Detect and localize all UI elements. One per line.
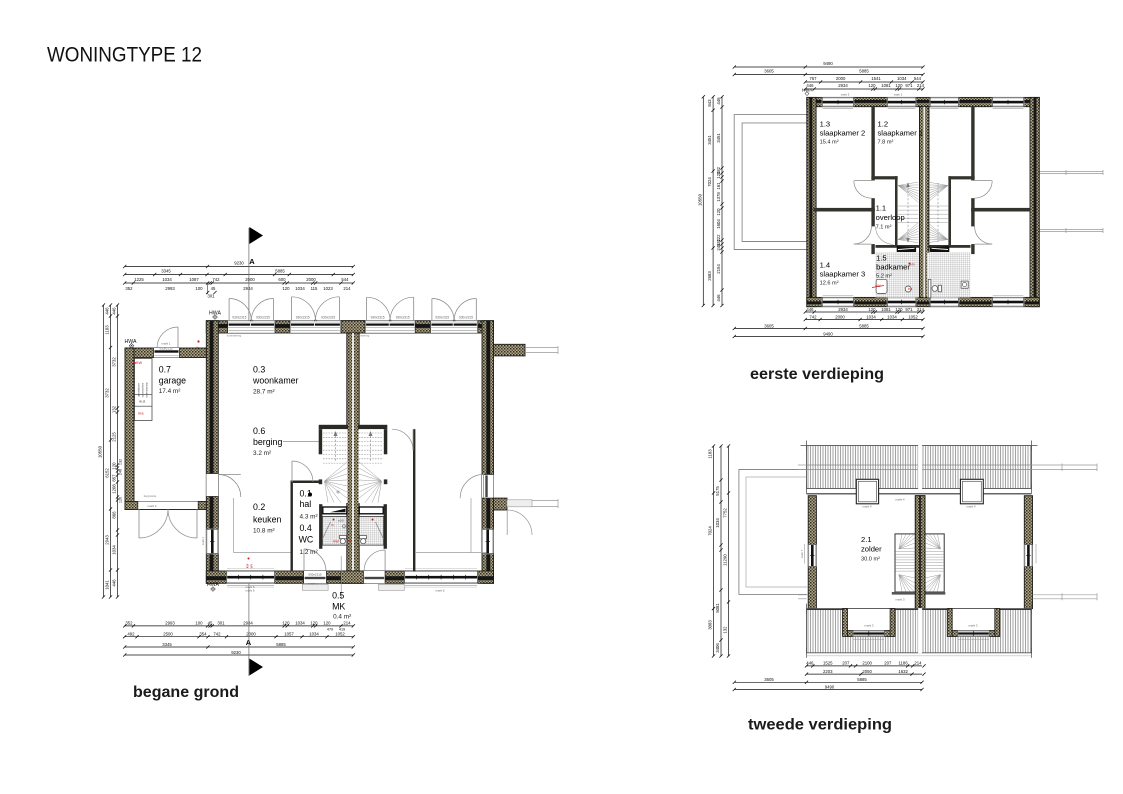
svg-text:120: 120 (310, 621, 318, 626)
svg-text:1.5: 1.5 (876, 253, 887, 262)
svg-text:mark 6: mark 6 (245, 585, 255, 589)
svg-text:1034: 1034 (887, 314, 897, 319)
svg-text:1.2: 1.2 (878, 119, 889, 128)
svg-text:446: 446 (112, 579, 117, 587)
svg-text:mark c: mark c (201, 536, 205, 545)
svg-text:0.2: 0.2 (253, 502, 265, 512)
svg-text:eerste verdieping: eerste verdieping (750, 366, 884, 383)
svg-text:1.2 m²: 1.2 m² (300, 549, 318, 556)
svg-text:120: 120 (282, 286, 290, 291)
svg-text:5885: 5885 (276, 642, 286, 647)
svg-text:2934: 2934 (838, 83, 848, 88)
svg-text:0.4: 0.4 (300, 523, 312, 533)
svg-text:3732: 3732 (112, 357, 117, 367)
svg-text:930x2315: 930x2315 (371, 316, 385, 320)
svg-text:1034: 1034 (295, 621, 305, 626)
svg-text:slaapkamer 2: slaapkamer 2 (820, 128, 866, 137)
svg-text:1632: 1632 (898, 669, 908, 674)
svg-text:mark 4: mark 4 (895, 498, 905, 502)
svg-text:3605: 3605 (764, 68, 774, 73)
svg-text:207: 207 (842, 661, 850, 666)
svg-text:wv: wv (250, 564, 254, 569)
svg-text:600: 600 (278, 277, 286, 282)
svg-text:1034: 1034 (715, 518, 720, 528)
svg-text:woonkamer: woonkamer (252, 376, 299, 386)
svg-text:5885: 5885 (859, 68, 869, 73)
svg-text:7.8 m²: 7.8 m² (878, 139, 894, 145)
svg-text:MK: MK (332, 602, 345, 612)
svg-text:2203: 2203 (823, 669, 833, 674)
svg-text:301: 301 (207, 294, 215, 299)
svg-text:2993: 2993 (165, 286, 175, 291)
svg-text:7752: 7752 (723, 508, 728, 518)
svg-text:3345: 3345 (161, 269, 171, 274)
svg-text:slaapkamer 3: slaapkamer 3 (820, 269, 866, 278)
svg-text:1103: 1103 (105, 325, 110, 335)
svg-text:berging: berging (253, 437, 282, 447)
svg-text:2.1: 2.1 (861, 535, 872, 544)
svg-text:446: 446 (716, 97, 721, 105)
svg-text:120: 120 (895, 307, 903, 312)
svg-text:A: A (249, 257, 255, 266)
svg-text:930x2315: 930x2315 (159, 346, 173, 350)
svg-text:1604: 1604 (716, 219, 721, 229)
svg-text:1052: 1052 (908, 314, 918, 319)
svg-text:214: 214 (917, 307, 925, 312)
svg-text:5175: 5175 (715, 486, 720, 496)
svg-text:1087: 1087 (189, 277, 199, 282)
svg-text:3605: 3605 (764, 677, 774, 682)
svg-text:120: 120 (716, 208, 721, 216)
svg-text:2000: 2000 (246, 632, 256, 637)
svg-text:352: 352 (125, 621, 133, 626)
svg-text:wasmachine: wasmachine (141, 382, 145, 397)
svg-text:1081: 1081 (881, 83, 891, 88)
svg-text:930x2315: 930x2315 (296, 316, 310, 320)
svg-text:10550: 10550 (697, 193, 702, 206)
svg-text:742: 742 (809, 314, 817, 319)
svg-text:7024: 7024 (707, 177, 712, 187)
svg-text:2100: 2100 (862, 661, 872, 666)
svg-text:3406: 3406 (715, 643, 720, 653)
svg-text:1034: 1034 (162, 277, 172, 282)
svg-text:kW: kW (333, 540, 339, 544)
svg-text:2934: 2934 (243, 621, 253, 626)
svg-text:7024: 7024 (708, 526, 713, 536)
svg-text:971: 971 (905, 307, 913, 312)
svg-text:slaapkamer 1: slaapkamer 1 (878, 128, 924, 137)
svg-text:6152: 6152 (105, 468, 110, 478)
svg-text:7.1 m²: 7.1 m² (876, 224, 892, 230)
svg-text:446: 446 (716, 294, 721, 302)
svg-text:mark 4: mark 4 (966, 505, 976, 509)
svg-text:15.4 m²: 15.4 m² (820, 139, 839, 145)
svg-text:301: 301 (217, 621, 225, 626)
svg-text:857: 857 (112, 474, 117, 482)
svg-text:479: 479 (327, 628, 333, 632)
svg-text:120: 120 (119, 497, 123, 503)
svg-text:930x2315: 930x2315 (256, 316, 270, 320)
svg-text:0.5: 0.5 (332, 591, 344, 601)
svg-text:742: 742 (213, 632, 221, 637)
svg-text:930x2315: 930x2315 (396, 316, 410, 320)
svg-text:446: 446 (105, 307, 110, 315)
svg-text:mark 5: mark 5 (245, 589, 255, 593)
svg-text:100: 100 (195, 621, 203, 626)
svg-text:mark 3: mark 3 (864, 624, 874, 628)
svg-text:keuken: keuken (253, 515, 281, 525)
svg-text:120: 120 (895, 83, 903, 88)
svg-text:kra: kra (139, 412, 144, 416)
svg-text:borstwering: borstwering (227, 334, 242, 338)
svg-text:1052: 1052 (335, 632, 345, 637)
svg-text:354: 354 (199, 632, 207, 637)
svg-text:45: 45 (211, 286, 216, 291)
svg-text:2000: 2000 (835, 314, 845, 319)
svg-text:warmtepomp: warmtepomp (145, 382, 149, 398)
svg-text:2194: 2194 (716, 264, 721, 274)
svg-text:2000: 2000 (836, 76, 846, 81)
svg-text:930x2315: 930x2315 (321, 316, 335, 320)
svg-text:2993: 2993 (165, 621, 175, 626)
svg-text:3732: 3732 (105, 388, 110, 398)
svg-text:zolder: zolder (861, 545, 882, 554)
svg-text:1186: 1186 (898, 661, 908, 666)
svg-text:HWA: HWA (209, 311, 221, 317)
svg-text:borstwering: borstwering (355, 334, 370, 338)
svg-text:2125: 2125 (112, 432, 117, 442)
svg-text:132: 132 (119, 459, 123, 465)
svg-text:mark 1: mark 1 (894, 93, 903, 97)
svg-text:overloop: overloop (876, 213, 905, 222)
svg-text:3345: 3345 (162, 642, 172, 647)
svg-text:1.4: 1.4 (820, 260, 831, 269)
svg-text:1023: 1023 (323, 286, 333, 291)
svg-text:161: 161 (716, 182, 721, 190)
svg-text:mark 3: mark 3 (968, 624, 978, 628)
svg-text:4.3 m²: 4.3 m² (300, 514, 318, 521)
svg-text:3451: 3451 (707, 135, 712, 145)
svg-text:1183: 1183 (708, 449, 713, 459)
svg-text:12.6 m²: 12.6 m² (820, 280, 839, 286)
svg-text:214: 214 (914, 661, 922, 666)
svg-text:115: 115 (311, 286, 318, 291)
svg-text:17.4 m²: 17.4 m² (159, 388, 181, 395)
svg-text:446: 446 (806, 661, 814, 666)
svg-text:1034: 1034 (866, 314, 876, 319)
svg-text:5885: 5885 (275, 269, 285, 274)
svg-text:1041: 1041 (105, 580, 110, 590)
svg-text:9490: 9490 (823, 61, 833, 66)
svg-text:0.3: 0.3 (253, 365, 265, 375)
svg-text:767: 767 (809, 76, 817, 81)
svg-text:mark 1: mark 1 (161, 342, 171, 346)
svg-text:930x2315: 930x2315 (308, 573, 322, 577)
svg-text:207: 207 (884, 661, 892, 666)
svg-text:mark a: mark a (308, 582, 318, 586)
svg-text:5885: 5885 (859, 323, 869, 328)
svg-text:214: 214 (917, 83, 925, 88)
svg-text:1208: 1208 (112, 484, 117, 494)
svg-text:2934: 2934 (838, 307, 848, 312)
svg-text:1.1: 1.1 (876, 203, 887, 212)
svg-text:0.7: 0.7 (159, 365, 171, 375)
svg-text:930x2315: 930x2315 (435, 316, 449, 320)
svg-text:1034: 1034 (112, 545, 117, 555)
svg-text:1525: 1525 (823, 661, 833, 666)
svg-text:120: 120 (282, 621, 290, 626)
svg-text:843: 843 (707, 99, 712, 107)
svg-text:30.0 m²: 30.0 m² (861, 557, 880, 563)
svg-text:mark 5: mark 5 (841, 93, 850, 97)
svg-text:120: 120 (323, 621, 331, 626)
svg-text:WC: WC (299, 535, 314, 545)
svg-text:419: 419 (339, 628, 345, 632)
svg-text:100: 100 (195, 286, 203, 291)
svg-text:bergruimte: bergruimte (144, 494, 157, 498)
svg-text:mark b: mark b (147, 504, 157, 508)
svg-text:1378: 1378 (716, 192, 721, 202)
svg-text:2000: 2000 (306, 277, 316, 282)
svg-text:492: 492 (127, 632, 135, 637)
svg-text:214: 214 (343, 621, 351, 626)
svg-text:d: d (331, 524, 335, 526)
svg-text:2000: 2000 (245, 277, 255, 282)
svg-text:badkamer: badkamer (876, 262, 910, 271)
svg-text:544: 544 (914, 76, 922, 81)
svg-text:mark 5: mark 5 (435, 589, 445, 593)
svg-text:5885: 5885 (857, 677, 867, 682)
svg-text:3083: 3083 (708, 620, 713, 630)
svg-text:kw: kw (908, 287, 913, 291)
svg-text:1225: 1225 (134, 277, 144, 282)
svg-text:9230: 9230 (234, 260, 244, 265)
svg-text:mark 3: mark 3 (895, 598, 905, 602)
svg-text:2943: 2943 (105, 535, 110, 545)
svg-text:2500: 2500 (163, 632, 173, 637)
svg-text:mark 7: mark 7 (800, 549, 804, 558)
svg-text:9230: 9230 (231, 650, 241, 655)
svg-text:w.d.: w.d. (139, 400, 145, 404)
svg-text:930x2315: 930x2315 (459, 316, 473, 320)
svg-text:2050: 2050 (862, 669, 872, 674)
svg-text:214: 214 (343, 286, 351, 291)
svg-text:tweede verdieping: tweede verdieping (748, 717, 892, 734)
svg-text:10.8 m²: 10.8 m² (253, 528, 275, 535)
svg-text:120: 120 (868, 307, 876, 312)
svg-text:446: 446 (806, 307, 814, 312)
svg-text:hal: hal (300, 499, 312, 509)
svg-text:10550: 10550 (98, 445, 103, 458)
svg-text:352: 352 (125, 286, 133, 291)
svg-text:ø110: ø110 (338, 519, 345, 523)
svg-text:11290: 11290 (723, 554, 728, 566)
svg-text:9490: 9490 (823, 331, 833, 336)
svg-text:WONINGTYPE 12: WONINGTYPE 12 (47, 43, 202, 67)
svg-text:garage: garage (159, 376, 186, 386)
svg-text:120: 120 (112, 462, 117, 470)
svg-text:246: 246 (119, 469, 123, 475)
svg-text:5081: 5081 (715, 603, 720, 613)
svg-text:3605: 3605 (764, 323, 774, 328)
svg-text:2683: 2683 (707, 271, 712, 281)
svg-text:3.2 m²: 3.2 m² (253, 450, 271, 457)
svg-text:1.3: 1.3 (820, 119, 831, 128)
svg-text:1034: 1034 (309, 632, 319, 637)
svg-text:1081: 1081 (881, 307, 891, 312)
svg-text:1057: 1057 (284, 632, 294, 637)
svg-text:1034: 1034 (295, 286, 305, 291)
svg-text:1034: 1034 (897, 76, 907, 81)
svg-text:120: 120 (716, 171, 721, 179)
svg-text:930x2315: 930x2315 (232, 316, 246, 320)
svg-text:3451: 3451 (716, 133, 721, 143)
svg-text:246: 246 (716, 243, 721, 251)
svg-text:45: 45 (208, 621, 213, 626)
svg-text:0.6: 0.6 (253, 426, 265, 436)
svg-text:2934: 2934 (243, 286, 253, 291)
svg-text:5.2 m²: 5.2 m² (876, 273, 892, 279)
svg-text:120: 120 (868, 83, 876, 88)
svg-text:544: 544 (341, 277, 349, 282)
svg-text:446: 446 (112, 307, 117, 315)
svg-text:opstelplaats: opstelplaats (137, 382, 141, 397)
svg-text:28.7 m²: 28.7 m² (253, 389, 275, 396)
svg-text:9490: 9490 (825, 684, 835, 689)
svg-text:mark 4: mark 4 (862, 505, 872, 509)
svg-text:begane grond: begane grond (133, 684, 239, 701)
svg-text:KW: KW (136, 361, 143, 365)
svg-text:132: 132 (112, 405, 117, 413)
svg-text:971: 971 (905, 83, 913, 88)
svg-text:0.4 m²: 0.4 m² (333, 614, 351, 621)
svg-text:1541: 1541 (871, 76, 881, 81)
svg-text:132: 132 (723, 626, 728, 634)
svg-text:866: 866 (112, 511, 117, 519)
